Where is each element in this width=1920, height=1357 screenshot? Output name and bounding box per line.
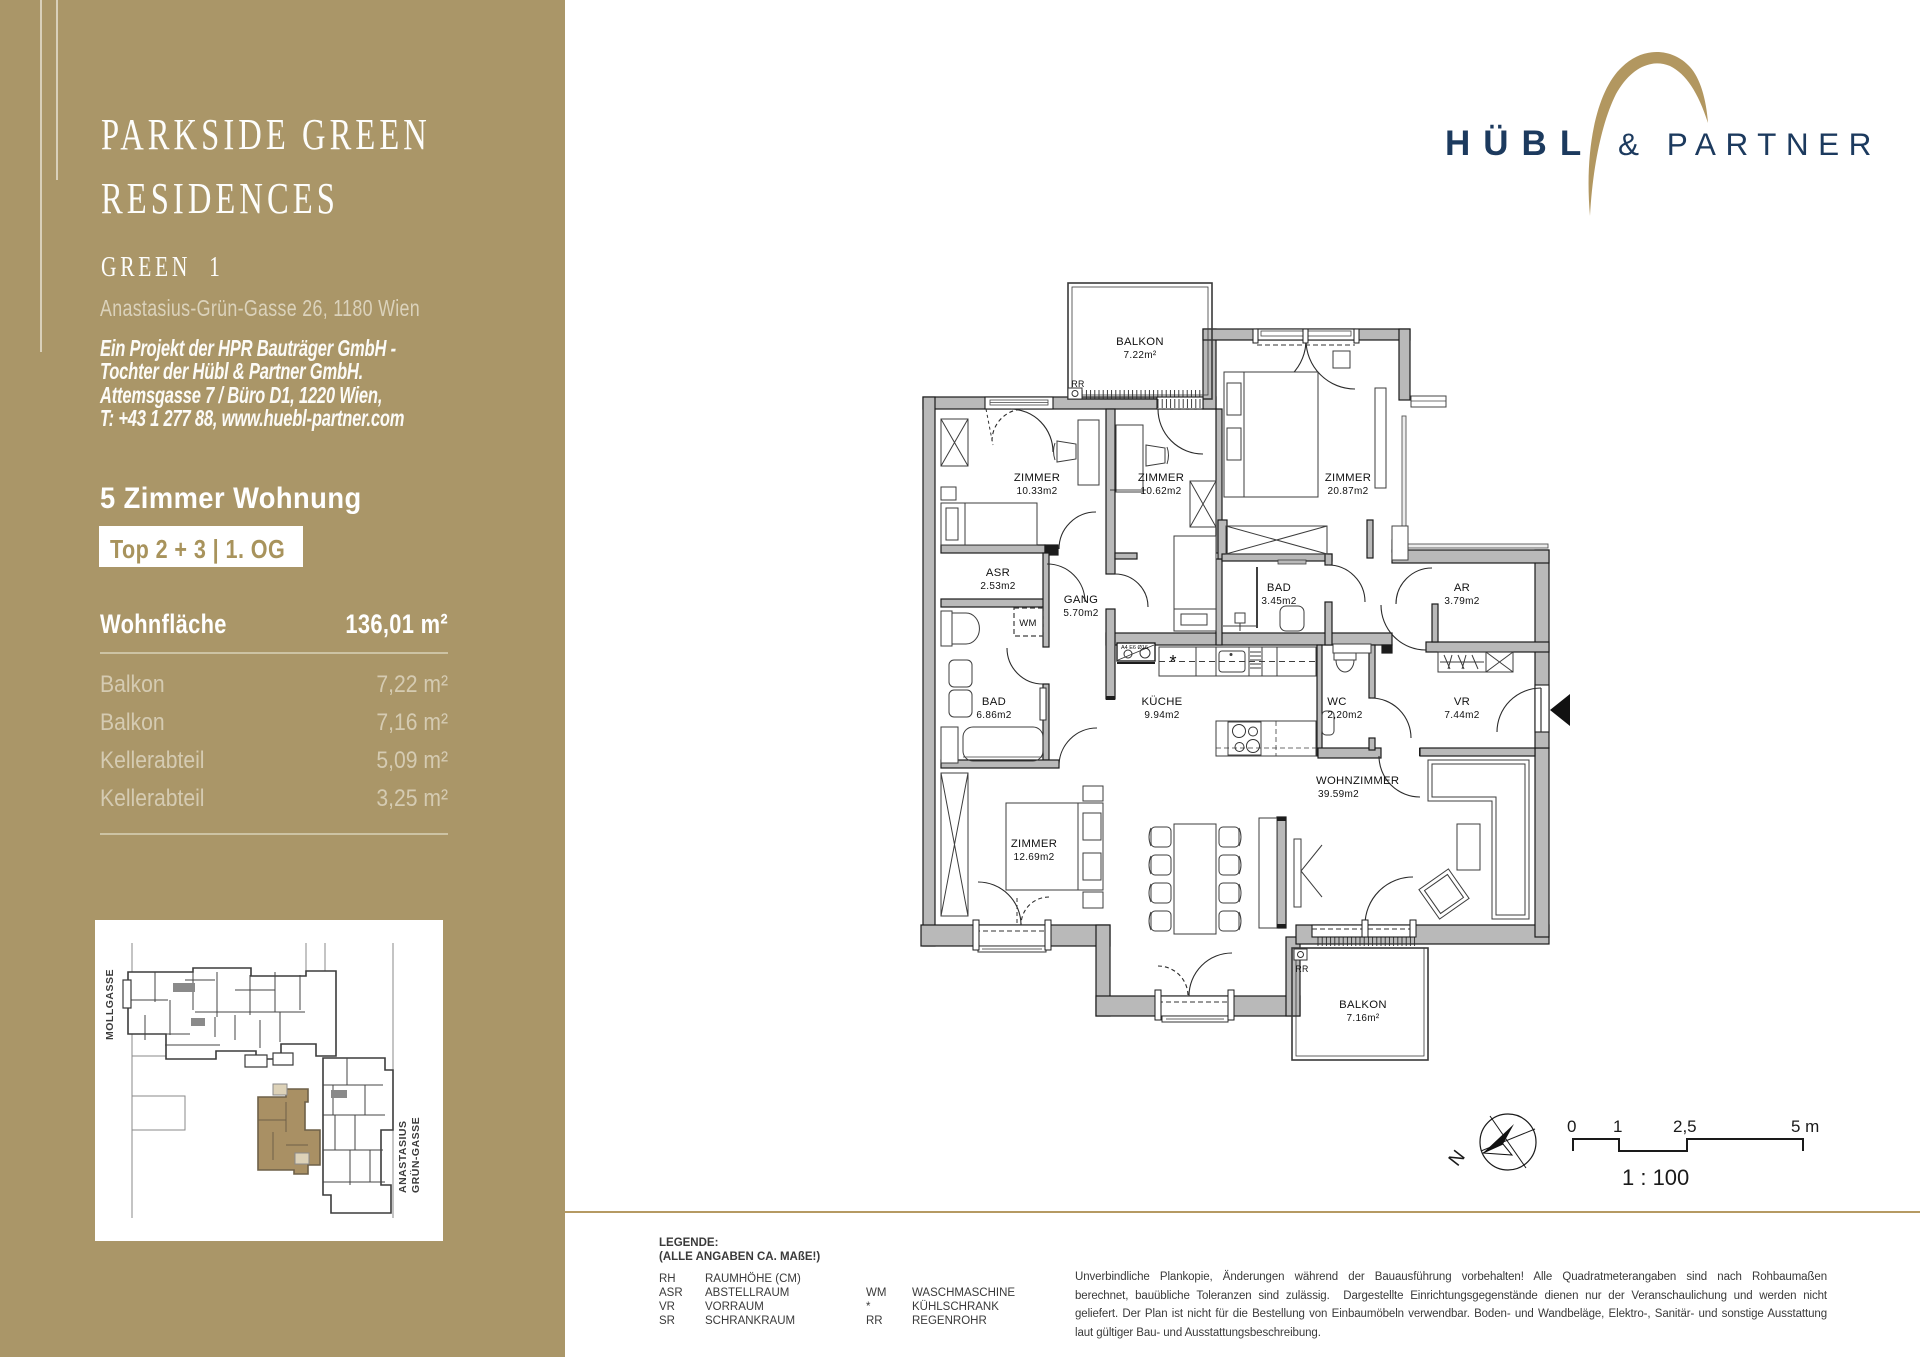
svg-text:BAD: BAD [1267, 582, 1291, 594]
svg-text:GANG: GANG [1064, 594, 1098, 606]
svg-text:WOHNZIMMER: WOHNZIMMER [1316, 775, 1399, 787]
svg-text:*: * [1169, 652, 1176, 672]
svg-text:ZIMMER: ZIMMER [1011, 838, 1057, 850]
svg-text:ZIMMER: ZIMMER [1014, 472, 1060, 484]
svg-text:ASR: ASR [986, 567, 1010, 579]
svg-text:7.16m²: 7.16m² [1347, 1013, 1380, 1024]
svg-text:20.87m2: 20.87m2 [1327, 486, 1368, 497]
svg-text:1: 1 [1613, 1117, 1622, 1136]
svg-text:ANASTASIUS: ANASTASIUS [397, 1121, 409, 1193]
svg-text:1 : 100: 1 : 100 [1622, 1165, 1689, 1190]
svg-text:7.22m²: 7.22m² [1124, 350, 1157, 361]
svg-text:0: 0 [1567, 1117, 1576, 1136]
svg-text:5.70m2: 5.70m2 [1063, 608, 1098, 619]
svg-text:5 m: 5 m [1791, 1117, 1819, 1136]
svg-text:BALKON: BALKON [1116, 336, 1164, 348]
svg-text:BALKON: BALKON [1339, 999, 1387, 1011]
svg-text:VR: VR [1454, 696, 1470, 708]
svg-text:3.45m2: 3.45m2 [1261, 596, 1296, 607]
svg-text:AR: AR [1454, 582, 1470, 594]
svg-text:6.86m2: 6.86m2 [976, 710, 1011, 721]
svg-text:3.79m2: 3.79m2 [1444, 596, 1479, 607]
svg-text:KÜCHE: KÜCHE [1141, 696, 1182, 708]
svg-text:39.59m2: 39.59m2 [1318, 789, 1359, 800]
svg-text:N: N [1445, 1147, 1470, 1171]
svg-text:MOLLGASSE: MOLLGASSE [104, 969, 116, 1040]
svg-text:ZIMMER: ZIMMER [1138, 472, 1184, 484]
svg-text:10.33m2: 10.33m2 [1016, 486, 1057, 497]
svg-text:WC: WC [1327, 696, 1346, 708]
svg-text:ZIMMER: ZIMMER [1325, 472, 1371, 484]
svg-text:7.44m2: 7.44m2 [1444, 710, 1479, 721]
svg-text:10.62m2: 10.62m2 [1140, 486, 1181, 497]
svg-text:GRÜN-GASSE: GRÜN-GASSE [409, 1117, 422, 1193]
svg-text:2.53m2: 2.53m2 [980, 581, 1015, 592]
svg-text:& PARTNER: & PARTNER [1618, 126, 1880, 162]
svg-text:2,5: 2,5 [1673, 1117, 1697, 1136]
svg-text:9.94m2: 9.94m2 [1144, 710, 1179, 721]
svg-text:BAD: BAD [982, 696, 1006, 708]
svg-text:RR: RR [1295, 964, 1308, 974]
svg-text:A4 E6 Ø16: A4 E6 Ø16 [1121, 645, 1148, 651]
svg-text:12.69m2: 12.69m2 [1013, 852, 1054, 863]
svg-text:WM: WM [1019, 618, 1036, 629]
svg-text:HÜBL: HÜBL [1445, 124, 1594, 163]
svg-text:RR: RR [1071, 379, 1084, 389]
svg-text:2,20m2: 2,20m2 [1327, 710, 1362, 721]
